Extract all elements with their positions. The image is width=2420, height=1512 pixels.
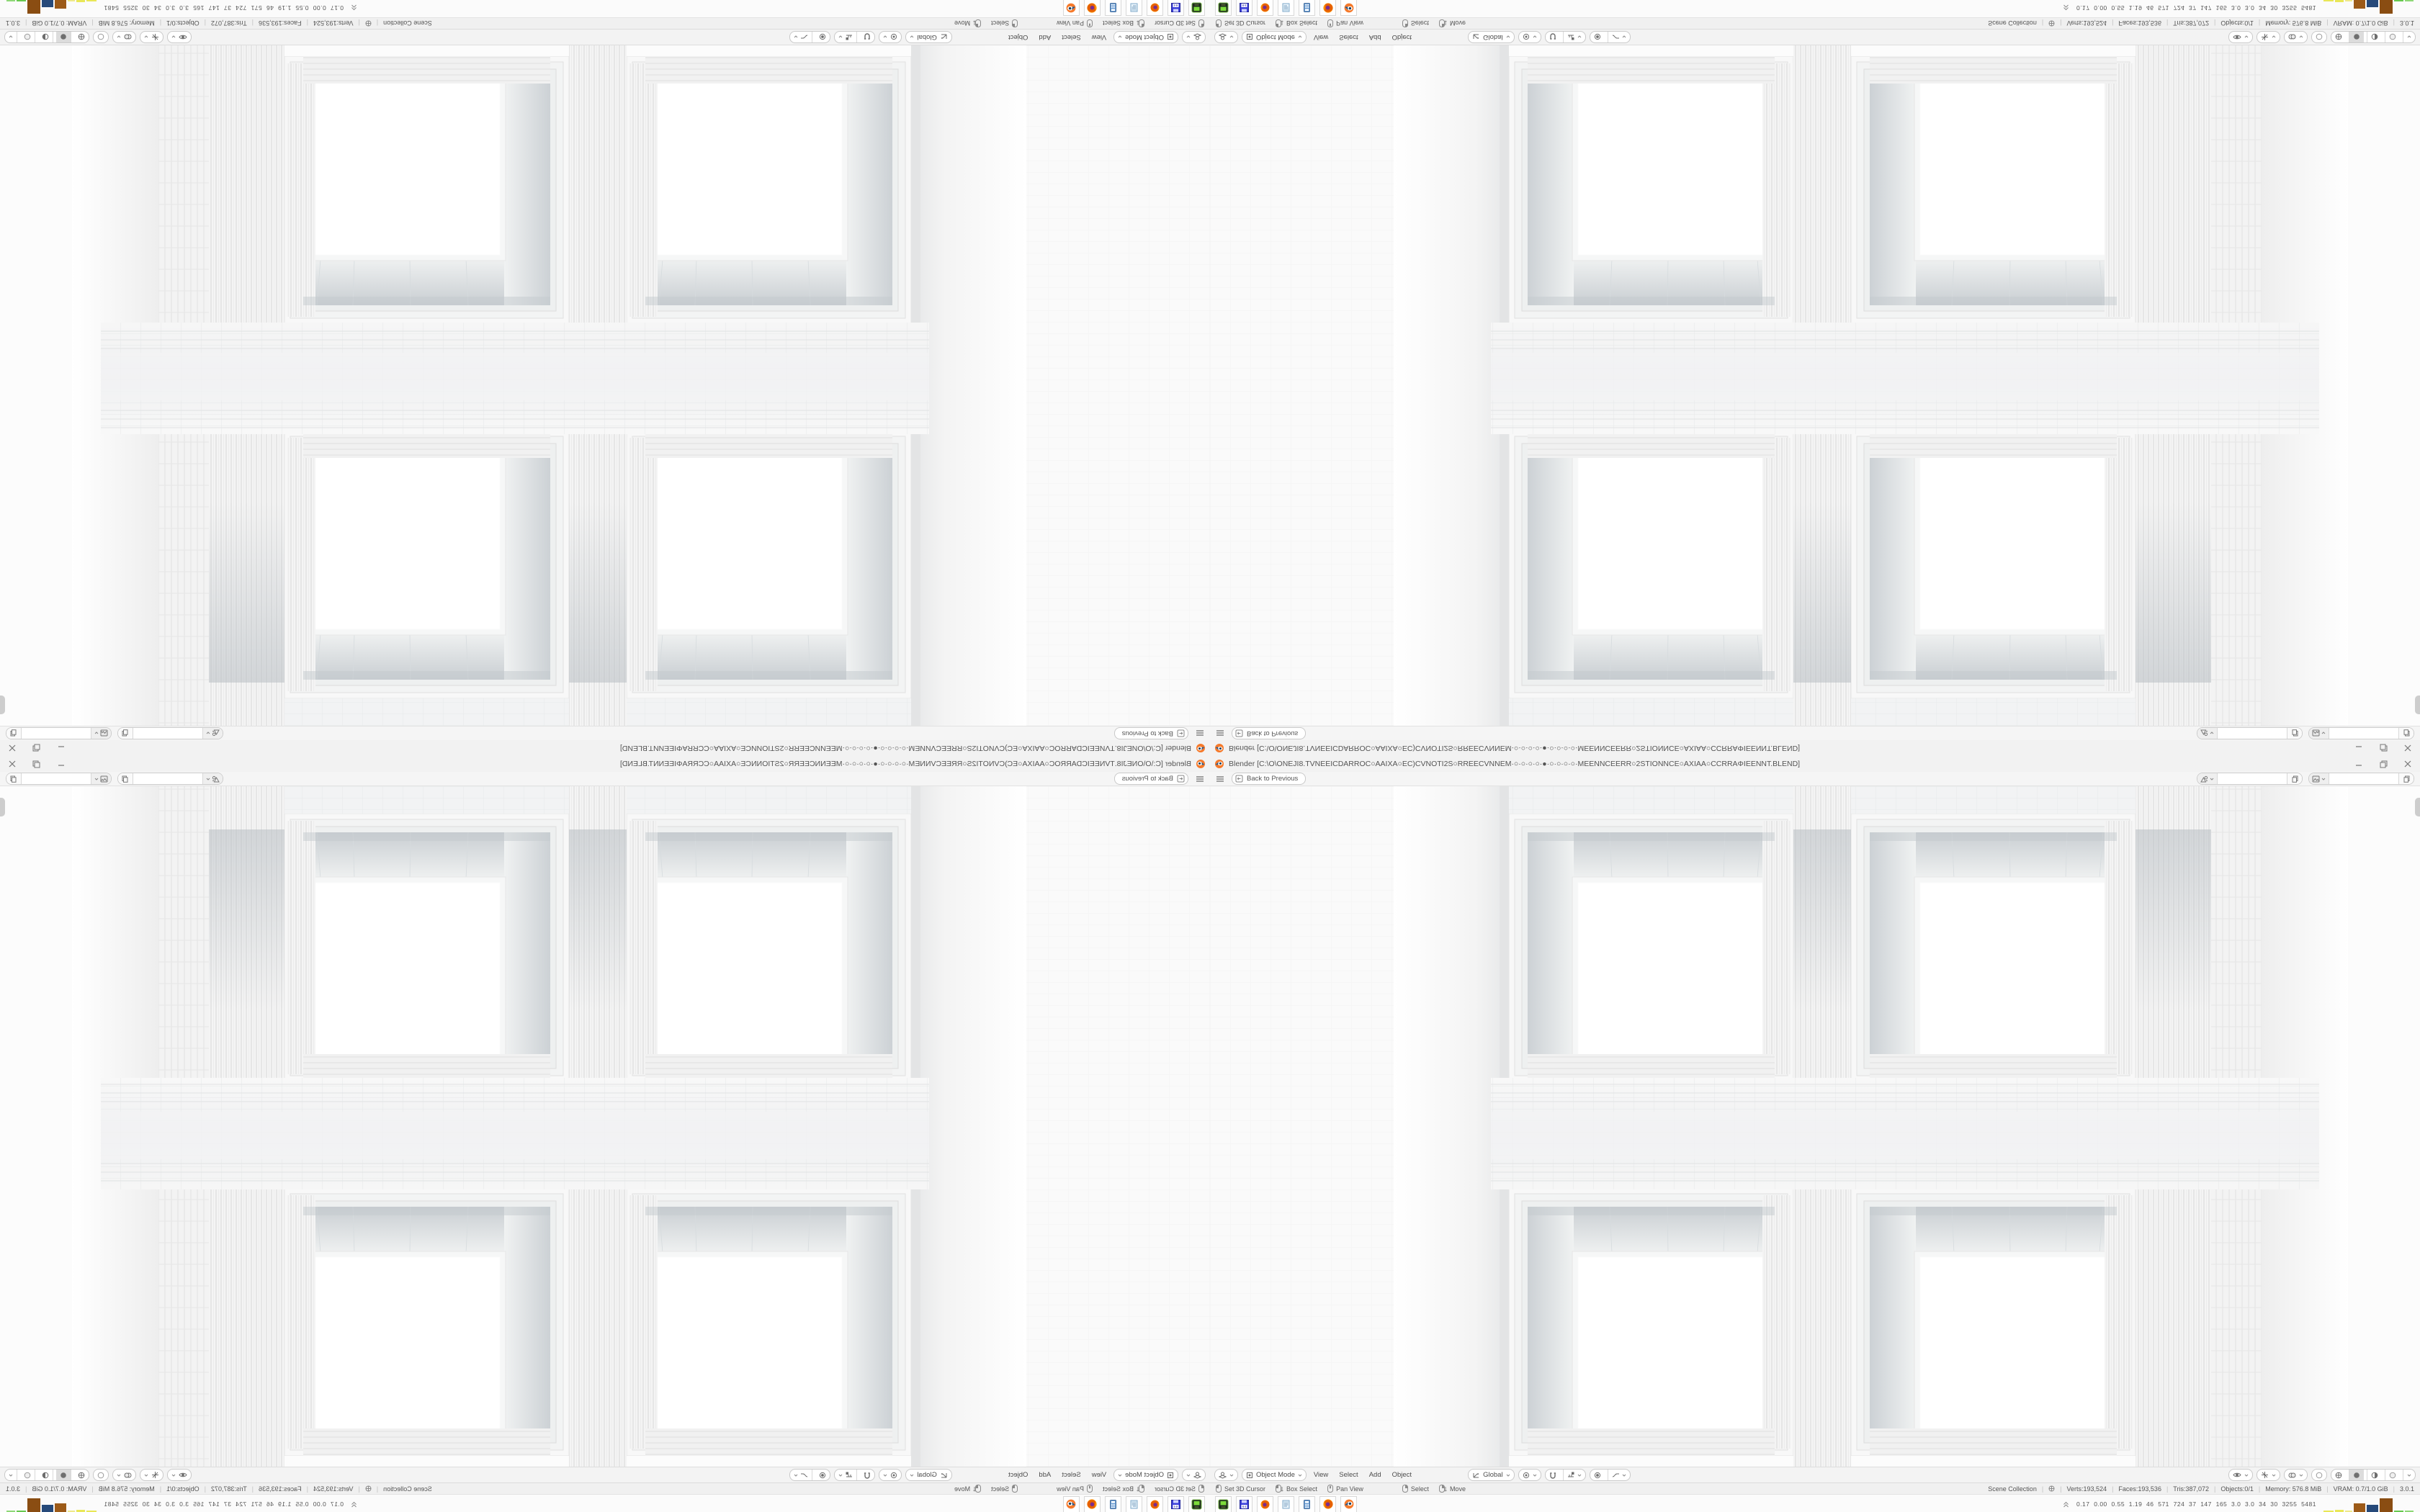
scene-selector[interactable] <box>2197 773 2303 785</box>
mouse-left-icon <box>1216 1485 1222 1493</box>
scene-collection-label: Scene Collection <box>383 1485 432 1493</box>
taskbar-installer-x64-icon[interactable]: 64 <box>1236 1496 1252 1512</box>
chevron-down-icon <box>2210 778 2214 780</box>
performance-values: 0.17 0.00 0.55 1.19 46 571 724 37 147 16… <box>104 4 344 12</box>
taskbar-screen-recorder-icon[interactable] <box>1215 0 1232 17</box>
minimize-button[interactable] <box>49 756 73 772</box>
taskbar-calculator-icon[interactable] <box>1299 1496 1315 1512</box>
minimize-button[interactable] <box>2347 756 2371 772</box>
scene-statistics: Scene Collection Verts:193,524 Faces:193… <box>1988 20 2414 27</box>
chevron-down-icon <box>1533 36 1537 39</box>
xray-icon <box>97 34 104 41</box>
toggle-xray-button[interactable] <box>93 31 109 43</box>
toggle-xray-button[interactable] <box>2311 31 2327 43</box>
taskbar-firefox-icon[interactable] <box>1257 0 1273 17</box>
taskbar-blender-icon[interactable] <box>1340 1496 1357 1512</box>
shading-wireframe-button[interactable] <box>74 1470 89 1480</box>
chevron-down-icon <box>144 36 148 39</box>
scene-name-field[interactable] <box>2218 773 2287 784</box>
new-view-layer-button[interactable] <box>2398 728 2414 739</box>
chevron-up-double-icon[interactable] <box>351 5 357 12</box>
taskbar-notepad-icon[interactable] <box>1126 0 1142 17</box>
facade-beam-band <box>101 1078 929 1189</box>
hint-pan-view: Pan View <box>1327 19 1363 27</box>
scene-icon <box>212 730 220 737</box>
chevron-down-icon <box>883 1474 887 1477</box>
view-layer-selector[interactable] <box>6 773 112 785</box>
close-button[interactable] <box>2396 756 2420 772</box>
window-titlebar[interactable]: Blender [C:\O\ONEJI8.TVNEEICDARROC○AAIXA… <box>1210 756 2420 772</box>
hamburger-menu-icon[interactable] <box>1216 730 1224 737</box>
back-to-previous-button[interactable]: Back to Previous <box>1114 727 1188 739</box>
shading-dropdown[interactable] <box>2403 1470 2415 1480</box>
object-visibility-dropdown[interactable] <box>167 31 192 43</box>
blender-logo-icon <box>1214 743 1224 753</box>
hamburger-menu-icon[interactable] <box>1196 775 1204 783</box>
hint-box-select: Box Select <box>1276 1485 1317 1493</box>
back-arrow-icon <box>1235 729 1243 737</box>
new-view-layer-button[interactable] <box>6 773 22 784</box>
rendered-sphere-icon <box>24 34 31 41</box>
proportional-editing-controls[interactable] <box>1590 1469 1631 1481</box>
snap-target-dropdown[interactable] <box>835 1470 857 1480</box>
hamburger-menu-icon[interactable] <box>1196 730 1204 737</box>
taskbar-firefox-developer-icon[interactable] <box>1319 0 1336 17</box>
orientation-axes-icon <box>940 1472 948 1479</box>
select-menu[interactable]: Select <box>1335 33 1361 41</box>
editor-type-selector[interactable] <box>1214 1469 1238 1481</box>
taskbar-blender-icon[interactable] <box>1063 0 1080 17</box>
snap-magnet-toggle[interactable] <box>860 32 874 42</box>
taskbar-firefox-developer-icon[interactable] <box>1084 0 1101 17</box>
shading-wireframe-button[interactable] <box>74 32 89 42</box>
proportional-editing-controls[interactable] <box>789 31 830 43</box>
toggle-xray-button[interactable] <box>93 1469 109 1481</box>
back-to-previous-button[interactable]: Back to Previous <box>1232 727 1306 739</box>
object-menu[interactable]: Object <box>1005 1471 1031 1479</box>
floppy-label: 64 <box>1174 1505 1178 1509</box>
new-scene-button[interactable] <box>118 773 133 784</box>
blender-window: Blender [C:\O\ONEJI8.TVNEEICDARROC○AAIXA… <box>1210 756 2420 1512</box>
stat-vram: VRAM: 0.7/1.0 GiB <box>2321 1485 2388 1493</box>
transform-orientation-selector[interactable]: Global <box>1468 31 1514 43</box>
taskbar-blender-icon[interactable] <box>1340 0 1357 17</box>
chevron-down-icon <box>1118 1474 1122 1477</box>
stat-verts: Verts:193,524 <box>313 20 365 27</box>
shading-rendered-button[interactable] <box>20 1470 35 1480</box>
restore-button[interactable] <box>24 740 49 756</box>
taskbar-notepad-icon[interactable] <box>1126 1496 1142 1512</box>
hint-select: Select <box>991 19 1018 27</box>
xray-icon <box>2316 1472 2323 1479</box>
facade-window-upper-left <box>627 431 911 698</box>
hint-select: Select <box>1402 1485 1429 1493</box>
orientation-axes-icon <box>940 34 948 41</box>
chevron-down-icon <box>206 778 210 780</box>
pivot-point-selector[interactable] <box>879 31 902 43</box>
hint-pan-view: Pan View <box>1057 1485 1093 1493</box>
shading-solid-button[interactable] <box>2349 1470 2364 1480</box>
chevron-down-icon <box>1506 36 1510 39</box>
window-titlebar[interactable]: Blender [C:\O\ONEJI8.TVNEEICDARROC○AAIXA… <box>0 756 1210 772</box>
proportional-toggle[interactable] <box>1590 32 1605 42</box>
object-menu[interactable]: Object <box>1389 33 1415 41</box>
window-title: Blender [C:\O\ONEJI8.TVNEEICDARROC○AAIXA… <box>78 744 1191 752</box>
select-menu[interactable]: Select <box>1335 1471 1361 1479</box>
visibility-eye-icon <box>2233 34 2241 40</box>
taskbar-firefox-icon[interactable] <box>1147 0 1163 17</box>
chevron-down-icon <box>2272 36 2276 39</box>
proportional-editing-controls[interactable] <box>789 1469 830 1481</box>
material-sphere-icon <box>42 34 49 41</box>
taskbar-installer-x64-icon[interactable]: 64 <box>1168 0 1184 17</box>
shading-dropdown[interactable] <box>5 32 17 42</box>
duplicate-icon <box>122 730 129 737</box>
view-menu[interactable]: View <box>1310 33 1332 41</box>
chevron-down-icon <box>1229 1474 1234 1477</box>
falloff-dropdown[interactable] <box>1608 32 1630 42</box>
floppy-label: 64 <box>1242 1505 1247 1509</box>
view-layer-name-field[interactable] <box>2329 728 2398 739</box>
object-mode-icon <box>1246 1472 1253 1479</box>
composite-stage: Blender [C:\O\ONEJI8.TVNEEICDARROC○AAIXA… <box>0 0 2420 1512</box>
performance-values: 0.17 0.00 0.55 1.19 46 571 724 37 147 16… <box>2076 1500 2316 1508</box>
shading-material-button[interactable] <box>2367 32 2382 42</box>
minimize-button[interactable] <box>2347 740 2371 756</box>
mode-label: Object Mode <box>1256 1471 1295 1479</box>
snap-magnet-toggle[interactable] <box>1546 1470 1560 1480</box>
gizmo-arrows-icon <box>2261 33 2269 41</box>
show-gizmo-dropdown[interactable] <box>140 1469 163 1481</box>
scene-selector[interactable] <box>117 773 223 785</box>
snap-increment-icon <box>1567 1472 1575 1478</box>
sidebar-toggle-tab[interactable] <box>0 798 5 816</box>
3d-viewport[interactable] <box>1210 45 2420 726</box>
stat-memory: Memory: 576.8 MiB <box>2254 20 2321 27</box>
new-view-layer-button[interactable] <box>6 728 22 739</box>
shading-dropdown[interactable] <box>5 1470 17 1480</box>
object-visibility-dropdown[interactable] <box>2228 31 2253 43</box>
shading-material-button[interactable] <box>38 32 53 42</box>
snapping-controls[interactable] <box>834 1469 875 1481</box>
duplicate-icon <box>11 730 17 737</box>
taskbar-calculator-icon[interactable] <box>1105 1496 1121 1512</box>
facade-beam-band <box>101 323 929 434</box>
show-gizmo-dropdown[interactable] <box>2257 1469 2280 1481</box>
chevron-down-icon <box>1298 1474 1302 1477</box>
rendered-sphere-icon <box>24 1472 31 1479</box>
mouse-right-drag-icon <box>973 1485 981 1493</box>
orientation-label: Global <box>1483 33 1502 41</box>
proportional-toggle[interactable] <box>815 1470 830 1480</box>
back-to-previous-label: Back to Previous <box>1247 775 1298 783</box>
viewport-header: Object Mode View Select Add Object Globa… <box>1210 30 2420 45</box>
editor-type-selector[interactable] <box>1182 1469 1206 1481</box>
show-overlays-dropdown[interactable] <box>2284 31 2308 43</box>
chevron-down-icon <box>2272 1474 2276 1477</box>
close-button[interactable] <box>0 756 24 772</box>
falloff-dropdown[interactable] <box>790 32 812 42</box>
duplicate-icon <box>122 775 129 783</box>
taskbar-notepad-icon[interactable] <box>1278 1496 1294 1512</box>
mode-selector[interactable]: Object Mode <box>1242 1469 1307 1481</box>
object-mode-icon <box>1167 1472 1174 1479</box>
visibility-eye-icon <box>2233 1472 2241 1478</box>
orientation-label: Global <box>917 33 936 41</box>
editor-type-selector[interactable] <box>1182 31 1206 43</box>
chevron-down-icon <box>794 36 798 39</box>
chevron-down-icon <box>910 36 914 39</box>
mode-label: Object Mode <box>1125 1471 1164 1479</box>
restore-button[interactable] <box>2371 756 2396 772</box>
taskbar-calculator-icon[interactable] <box>1299 0 1315 17</box>
chevron-up-double-icon[interactable] <box>2063 1501 2069 1508</box>
mouse-right-icon <box>1402 1485 1408 1493</box>
duplicate-icon <box>2292 775 2298 783</box>
shading-solid-button[interactable] <box>56 1470 71 1480</box>
back-to-previous-button[interactable]: Back to Previous <box>1232 773 1306 785</box>
taskbar-firefox-icon[interactable] <box>1257 1496 1273 1512</box>
chevron-up-double-icon[interactable] <box>2063 5 2069 12</box>
facade-window-upper-left <box>1509 431 1793 698</box>
overlays-icon <box>124 34 132 41</box>
taskbar-firefox-icon[interactable] <box>1147 1496 1163 1512</box>
3d-viewport[interactable] <box>0 786 1210 1467</box>
show-overlays-dropdown[interactable] <box>2284 1469 2308 1481</box>
proportional-toggle[interactable] <box>815 32 830 42</box>
scene-collection-label: Scene Collection <box>1988 20 2037 27</box>
select-menu[interactable]: Select <box>1058 33 1084 41</box>
proportional-circle-icon <box>1594 34 1601 41</box>
new-scene-button[interactable] <box>2287 773 2302 784</box>
chevron-down-icon <box>2407 1474 2411 1477</box>
proportional-toggle[interactable] <box>1590 1470 1605 1480</box>
mouse-middle-icon <box>1087 1485 1093 1493</box>
shading-wireframe-button[interactable] <box>2331 32 2346 42</box>
duplicate-icon <box>2292 730 2298 737</box>
taskbar-screen-recorder-icon[interactable] <box>1188 0 1205 17</box>
view-layer-selector[interactable] <box>6 727 112 739</box>
sidebar-toggle-tab[interactable] <box>2415 798 2420 816</box>
shading-solid-button[interactable] <box>56 32 71 42</box>
toggle-xray-button[interactable] <box>2311 1469 2327 1481</box>
select-menu[interactable]: Select <box>1058 1471 1084 1479</box>
scene-name-field[interactable] <box>2218 728 2287 739</box>
sidebar-toggle-tab[interactable] <box>0 696 5 714</box>
facade-window-upper-right <box>1851 814 2136 1081</box>
snapping-controls[interactable] <box>1545 31 1586 43</box>
chevron-down-icon <box>838 36 843 39</box>
new-scene-button[interactable] <box>2287 728 2302 739</box>
close-button[interactable] <box>0 740 24 756</box>
snap-magnet-toggle[interactable] <box>1546 32 1560 42</box>
chevron-down-icon <box>1298 36 1302 39</box>
chevron-down-icon <box>2321 778 2326 780</box>
view-layer-name-field[interactable] <box>22 728 91 739</box>
window-titlebar[interactable]: Blender [C:\O\ONEJI8.TVNEEICDARROC○AAIXA… <box>1210 740 2420 756</box>
minimize-button[interactable] <box>49 740 73 756</box>
new-scene-button[interactable] <box>118 728 133 739</box>
chevron-down-icon <box>94 778 99 780</box>
snap-magnet-toggle[interactable] <box>860 1470 874 1480</box>
stat-tris: Tris:387,072 <box>2161 20 2209 27</box>
falloff-curve-icon <box>1612 35 1620 40</box>
show-overlays-dropdown[interactable] <box>112 1469 136 1481</box>
taskbar-calculator-icon[interactable] <box>1105 0 1121 17</box>
visibility-eye-icon <box>179 1472 187 1478</box>
editor-type-selector[interactable] <box>1214 31 1238 43</box>
object-menu[interactable]: Object <box>1005 33 1031 41</box>
taskbar-blender-icon[interactable] <box>1063 1496 1080 1512</box>
mode-selector[interactable]: Object Mode <box>1113 31 1178 43</box>
taskbar-screen-recorder-icon[interactable] <box>1215 1496 1232 1512</box>
wireframe-sphere-icon <box>78 34 85 41</box>
hint-box-select: Box Select <box>1103 1485 1144 1493</box>
snapping-controls[interactable] <box>834 31 875 43</box>
view-layer-selector[interactable] <box>2308 727 2414 739</box>
sidebar-toggle-tab[interactable] <box>2415 696 2420 714</box>
object-menu[interactable]: Object <box>1389 1471 1415 1479</box>
transform-orientation-selector[interactable]: Global <box>1468 1469 1514 1481</box>
os-taskbar: 64 <box>0 1494 1210 1512</box>
pivot-point-selector[interactable] <box>879 1469 902 1481</box>
xray-icon <box>2316 34 2323 41</box>
chevron-down-icon <box>1186 1474 1191 1477</box>
mouse-right-drag-icon <box>973 19 981 27</box>
stat-vram: VRAM: 0.7/1.0 GiB <box>32 1485 98 1493</box>
snapping-controls[interactable] <box>1545 1469 1586 1481</box>
shading-mode-switch <box>4 31 89 43</box>
view-layer-icon <box>100 730 108 737</box>
view-menu[interactable]: View <box>1088 33 1110 41</box>
shading-material-button[interactable] <box>38 1470 53 1480</box>
hint-pan-view: Pan View <box>1057 19 1093 27</box>
hint-pan-view: Pan View <box>1327 1485 1363 1493</box>
close-button[interactable] <box>2396 740 2420 756</box>
chevron-down-icon <box>2244 1474 2249 1477</box>
performance-bar-chart <box>6 0 97 17</box>
chevron-down-icon <box>1533 1474 1537 1477</box>
status-bar: Set 3D Cursor Box Select Pan View Select <box>0 1482 1210 1494</box>
scene-name-field[interactable] <box>133 728 202 739</box>
taskbar-firefox-developer-icon[interactable] <box>1319 1496 1336 1512</box>
shading-wireframe-button[interactable] <box>2331 1470 2346 1480</box>
falloff-dropdown[interactable] <box>790 1470 812 1480</box>
shading-rendered-button[interactable] <box>20 32 35 42</box>
chevron-down-icon <box>2244 36 2249 39</box>
mouse-left-drag-icon <box>1276 1485 1283 1493</box>
restore-button[interactable] <box>24 756 49 772</box>
hamburger-menu-icon[interactable] <box>1216 775 1224 783</box>
pivot-icon <box>1523 1472 1530 1479</box>
scene-selector[interactable] <box>2197 727 2303 739</box>
chevron-down-icon <box>1622 36 1626 39</box>
collection-icon <box>365 1485 383 1493</box>
show-overlays-dropdown[interactable] <box>112 31 136 43</box>
back-to-previous-button[interactable]: Back to Previous <box>1114 773 1188 785</box>
hint-box-select: Box Select <box>1276 19 1317 27</box>
add-menu[interactable]: Add <box>1366 33 1385 41</box>
taskbar-notepad-icon[interactable] <box>1278 0 1294 17</box>
shading-material-button[interactable] <box>2367 1470 2382 1480</box>
pivot-point-selector[interactable] <box>1518 1469 1541 1481</box>
scene-selector[interactable] <box>117 727 223 739</box>
shading-rendered-button[interactable] <box>2385 1470 2400 1480</box>
object-visibility-dropdown[interactable] <box>167 1469 192 1481</box>
transform-orientation-selector[interactable]: Global <box>905 31 951 43</box>
object-visibility-dropdown[interactable] <box>2228 1469 2253 1481</box>
view-layer-name-field[interactable] <box>2329 773 2398 784</box>
view-menu[interactable]: View <box>1310 1471 1332 1479</box>
back-to-previous-label: Back to Previous <box>1247 729 1298 737</box>
taskbar-installer-x64-icon[interactable]: 64 <box>1168 1496 1184 1512</box>
mouse-left-drag-icon <box>1276 19 1283 27</box>
hint-box-select: Box Select <box>1103 19 1144 27</box>
duplicate-icon <box>2403 730 2410 737</box>
add-menu[interactable]: Add <box>1035 33 1054 41</box>
chevron-up-double-icon[interactable] <box>351 1501 357 1508</box>
snap-target-dropdown[interactable] <box>1563 1470 1585 1480</box>
performance-readout: 0.17 0.00 0.55 1.19 46 571 724 37 147 16… <box>5 1495 357 1512</box>
chevron-down-icon <box>1506 1474 1510 1477</box>
transform-orientation-selector[interactable]: Global <box>905 1469 951 1481</box>
falloff-dropdown[interactable] <box>1608 1470 1630 1480</box>
hint-select: Select <box>991 1485 1018 1493</box>
scene-name-field[interactable] <box>133 773 202 784</box>
chevron-down-icon <box>2321 732 2326 735</box>
performance-values: 0.17 0.00 0.55 1.19 46 571 724 37 147 16… <box>104 1500 344 1508</box>
status-bar: Set 3D Cursor Box Select Pan View Select <box>0 18 1210 30</box>
facade-window-lower-left <box>1509 1188 1793 1456</box>
gizmo-arrows-icon <box>151 1471 159 1479</box>
os-taskbar: 64 <box>0 0 1210 18</box>
pivot-point-selector[interactable] <box>1518 31 1541 43</box>
mouse-right-drag-icon <box>1439 1485 1447 1493</box>
view-menu[interactable]: View <box>1088 1471 1110 1479</box>
shading-dropdown[interactable] <box>2403 32 2415 42</box>
proportional-circle-icon <box>819 1472 826 1479</box>
facade-window-upper-right <box>284 814 569 1081</box>
mode-selector[interactable]: Object Mode <box>1242 31 1307 43</box>
3d-viewport[interactable] <box>0 45 1210 726</box>
new-view-layer-button[interactable] <box>2398 773 2414 784</box>
hint-move: Move <box>954 19 981 27</box>
snap-target-dropdown[interactable] <box>1563 32 1585 42</box>
snap-target-dropdown[interactable] <box>835 32 857 42</box>
hint-select: Select <box>1402 19 1429 27</box>
hint-set-3d-cursor: Set 3D Cursor <box>1155 1485 1204 1493</box>
mode-selector[interactable]: Object Mode <box>1113 1469 1178 1481</box>
add-menu[interactable]: Add <box>1035 1471 1054 1479</box>
window-titlebar[interactable]: Blender [C:\O\ONEJI8.TVNEEICDARROC○AAIXA… <box>0 740 1210 756</box>
add-menu[interactable]: Add <box>1366 1471 1385 1479</box>
3d-viewport[interactable] <box>1210 786 2420 1467</box>
show-gizmo-dropdown[interactable] <box>140 31 163 43</box>
shading-rendered-button[interactable] <box>2385 32 2400 42</box>
shading-solid-button[interactable] <box>2349 32 2364 42</box>
taskbar-firefox-developer-icon[interactable] <box>1084 1496 1101 1512</box>
view-layer-selector[interactable] <box>2308 773 2414 785</box>
taskbar-screen-recorder-icon[interactable] <box>1188 1496 1205 1512</box>
restore-button[interactable] <box>2371 740 2396 756</box>
back-to-previous-label: Back to Previous <box>1122 775 1173 783</box>
overlays-icon <box>2288 1472 2296 1479</box>
view-layer-name-field[interactable] <box>22 773 91 784</box>
status-bar: Set 3D Cursor Box Select Pan View Select <box>1210 18 2420 30</box>
proportional-editing-controls[interactable] <box>1590 31 1631 43</box>
taskbar-installer-x64-icon[interactable]: 64 <box>1236 0 1252 17</box>
show-gizmo-dropdown[interactable] <box>2257 31 2280 43</box>
